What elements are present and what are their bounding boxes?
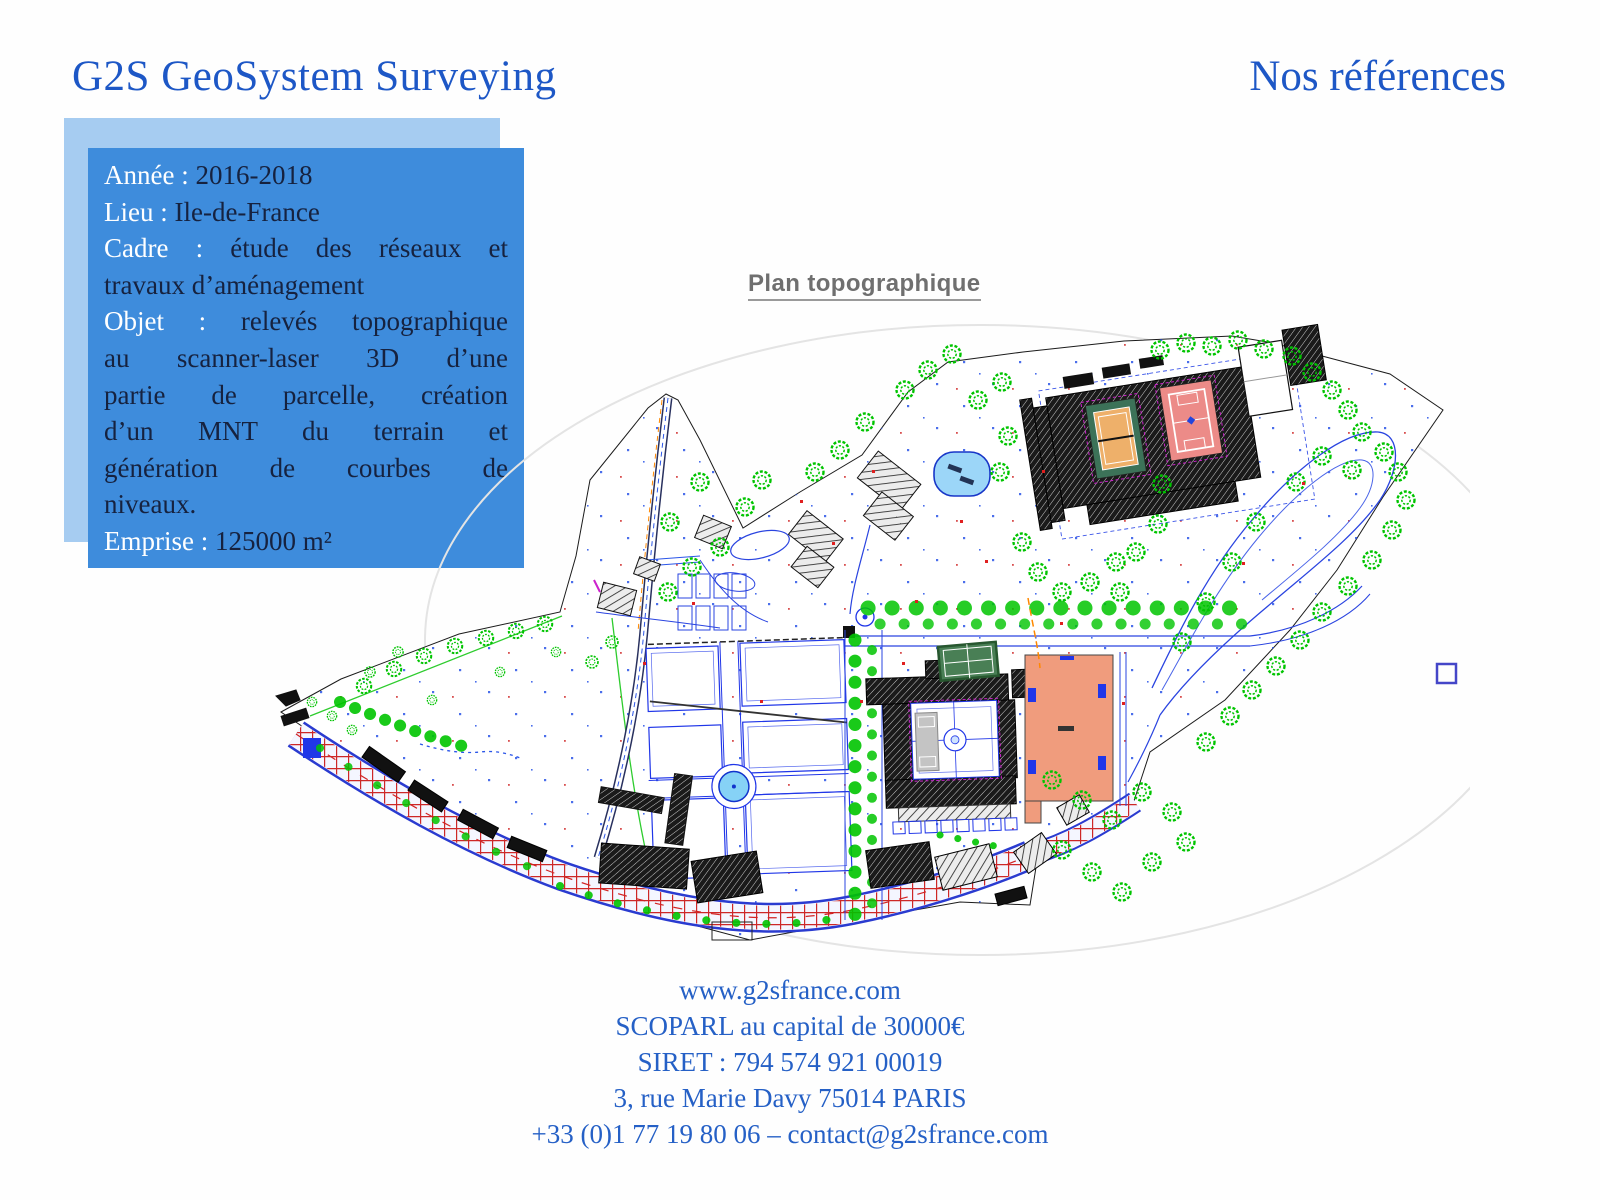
legend-square — [1437, 664, 1456, 683]
page-title: G2S GeoSystem Surveying — [72, 52, 557, 101]
topographic-plan — [255, 320, 1470, 970]
slide-page: G2S GeoSystem Surveying Nos références A… — [0, 0, 1600, 1200]
footer: www.g2sfrance.com SCOPARL au capital de … — [0, 972, 1580, 1152]
info-line: travaux d’aménagement — [104, 267, 508, 304]
info-label: Lieu : — [104, 197, 168, 227]
info-label: Année : — [104, 160, 189, 190]
footer-address: 3, rue Marie Davy 75014 PARIS — [0, 1080, 1580, 1116]
info-line: Cadre : étude des réseaux et — [104, 230, 508, 267]
info-label: Objet : — [104, 306, 206, 336]
footer-company: SCOPARL au capital de 30000€ — [0, 1008, 1580, 1044]
info-line: Lieu : Ile-de-France — [104, 194, 508, 231]
footer-website: www.g2sfrance.com — [0, 972, 1580, 1008]
footer-contact: +33 (0)1 77 19 80 06 – contact@g2sfrance… — [0, 1116, 1580, 1152]
salmon-building — [1025, 655, 1113, 823]
info-label: Emprise : — [104, 526, 208, 556]
info-line: Année : 2016-2018 — [104, 157, 508, 194]
footer-siret: SIRET : 794 574 921 00019 — [0, 1044, 1580, 1080]
pool — [934, 452, 990, 496]
map-caption: Plan topographique — [748, 270, 981, 298]
page-title-right: Nos références — [1249, 52, 1506, 101]
info-label: Cadre : — [104, 233, 203, 263]
